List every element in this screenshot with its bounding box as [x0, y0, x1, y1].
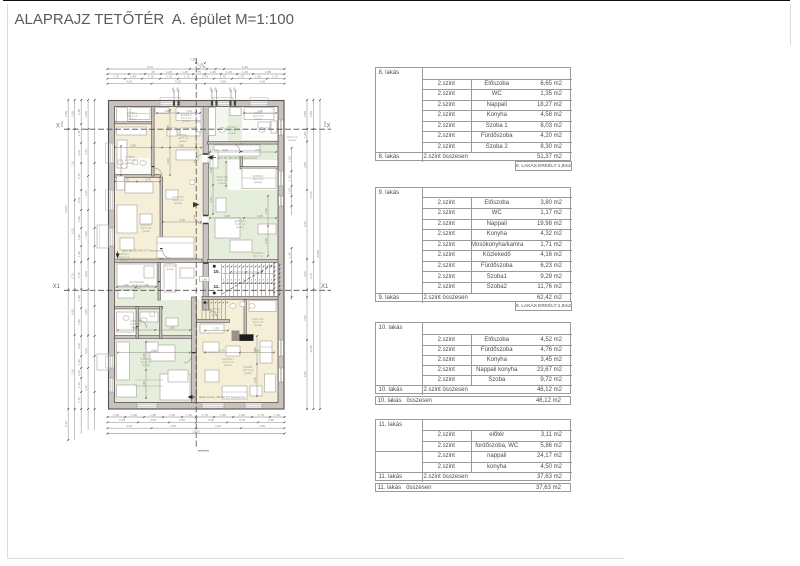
svg-text:X1: X1: [321, 284, 329, 290]
svg-text:1,70: 1,70: [113, 75, 119, 79]
svg-text:3,05: 3,05: [84, 271, 88, 277]
svg-text:4,30: 4,30: [126, 80, 132, 84]
svg-text:X: X: [56, 124, 60, 130]
svg-text:X1: X1: [53, 284, 61, 290]
svg-text:30,85: 30,85: [316, 250, 320, 258]
svg-text:greslap: greslap: [133, 287, 141, 290]
svg-text:3,40: 3,40: [84, 190, 88, 196]
svg-text:3,00: 3,00: [239, 418, 245, 422]
svg-text:2,10: 2,10: [166, 158, 170, 164]
svg-text:1,50: 1,50: [190, 58, 196, 62]
svg-text:18,27 m2: 18,27 m2: [165, 265, 176, 268]
svg-text:1,80: 1,80: [202, 278, 207, 281]
svg-text:2,85: 2,85: [64, 111, 68, 117]
svg-text:1,05: 1,05: [287, 188, 291, 194]
svg-text:1,75: 1,75: [213, 326, 219, 330]
svg-text:2,85: 2,85: [84, 111, 88, 117]
svg-text:18,27 m2: 18,27 m2: [253, 178, 264, 181]
svg-text:greslap: greslap: [142, 364, 150, 367]
svg-text:1,45: 1,45: [242, 70, 248, 74]
svg-text:4,70: 4,70: [84, 149, 88, 155]
svg-text:1,80: 1,80: [77, 234, 81, 240]
svg-text:1,35: 1,35: [287, 175, 291, 181]
svg-text:1,45: 1,45: [166, 70, 172, 74]
svg-text:3,50: 3,50: [220, 80, 226, 84]
svg-text:4,60: 4,60: [84, 309, 88, 315]
svg-text:2,75: 2,75: [309, 273, 313, 279]
svg-text:2,30: 2,30: [264, 208, 268, 214]
svg-text:1,70: 1,70: [186, 109, 192, 113]
svg-text:4,30: 4,30: [303, 315, 307, 321]
svg-text:11,95: 11,95: [309, 345, 313, 353]
svg-text:1,70: 1,70: [202, 75, 208, 79]
svg-text:2,85: 2,85: [130, 143, 136, 147]
svg-text:2,85: 2,85: [303, 111, 307, 117]
svg-text:2,28: 2,28: [253, 347, 257, 353]
svg-text:90: 90: [176, 87, 180, 90]
svg-text:18,27 m2: 18,27 m2: [173, 199, 184, 202]
svg-text:2,45: 2,45: [257, 214, 263, 218]
svg-text:greslap: greslap: [236, 226, 244, 229]
svg-text:2,30: 2,30: [222, 148, 228, 152]
svg-text:4,30: 4,30: [126, 424, 132, 428]
svg-text:1,85: 1,85: [239, 413, 245, 417]
svg-text:2,00: 2,00: [77, 150, 81, 156]
svg-text:greslap: greslap: [254, 118, 262, 121]
svg-text:4,55: 4,55: [71, 309, 75, 315]
svg-text:1,60: 1,60: [77, 251, 81, 257]
svg-text:1,65: 1,65: [113, 413, 119, 417]
svg-text:90: 90: [233, 87, 237, 90]
svg-text:2,78: 2,78: [179, 218, 185, 222]
svg-text:6,90: 6,90: [303, 221, 307, 227]
svg-text:7,10: 7,10: [71, 161, 75, 167]
svg-text:1,60: 1,60: [130, 75, 136, 79]
svg-text:45: 45: [151, 70, 155, 74]
svg-text:greslap: greslap: [126, 162, 134, 165]
svg-text:1,68: 1,68: [164, 109, 170, 113]
svg-text:13,30: 13,30: [309, 191, 313, 199]
svg-text:1,85: 1,85: [131, 413, 137, 417]
svg-text:greslap: greslap: [254, 258, 262, 261]
svg-text:1,70: 1,70: [148, 75, 154, 79]
svg-text:2,70: 2,70: [77, 173, 81, 179]
svg-text:2,00: 2,00: [77, 197, 81, 203]
svg-text:18,27 m2: 18,27 m2: [253, 255, 264, 258]
svg-text:greslap: greslap: [166, 268, 174, 271]
svg-text:15,05: 15,05: [192, 429, 200, 433]
svg-text:2,50: 2,50: [253, 377, 257, 383]
svg-text:1,50: 1,50: [200, 65, 206, 69]
svg-text:1,20: 1,20: [77, 359, 81, 365]
svg-text:3,25: 3,25: [84, 348, 88, 354]
svg-text:4,40: 4,40: [215, 424, 221, 428]
svg-text:2,75: 2,75: [71, 273, 75, 279]
svg-text:4,25: 4,25: [259, 80, 265, 84]
svg-text:1,70: 1,70: [166, 75, 172, 79]
svg-text:2,88: 2,88: [166, 125, 170, 131]
svg-text:2,60: 2,60: [224, 214, 230, 218]
svg-text:5,45: 5,45: [147, 65, 153, 69]
svg-text:1,40: 1,40: [274, 413, 280, 417]
svg-text:1,25: 1,25: [303, 132, 307, 138]
svg-text:18,27 m2: 18,27 m2: [130, 323, 141, 326]
svg-text:greslap: greslap: [224, 364, 232, 367]
svg-text:1,80: 1,80: [169, 413, 175, 417]
svg-text:4,90: 4,90: [84, 231, 88, 237]
svg-text:18,27 m2: 18,27 m2: [223, 361, 234, 364]
svg-text:2,70: 2,70: [77, 272, 81, 278]
svg-text:2,85: 2,85: [265, 70, 271, 74]
svg-text:1,75: 1,75: [258, 413, 264, 417]
svg-text:2,28: 2,28: [264, 238, 268, 244]
svg-text:greslap: greslap: [254, 181, 262, 184]
svg-text:2,85: 2,85: [71, 111, 75, 117]
svg-text:18,27 m2: 18,27 m2: [253, 115, 264, 118]
svg-text:greslap: greslap: [218, 182, 226, 185]
svg-text:greslap: greslap: [211, 314, 219, 317]
svg-text:greslap: greslap: [182, 120, 190, 123]
svg-text:greslap: greslap: [228, 132, 236, 135]
svg-text:2,20: 2,20: [209, 167, 213, 173]
svg-text:2,55: 2,55: [268, 418, 274, 422]
svg-text:7,40: 7,40: [71, 369, 75, 375]
svg-text:18,27 m2: 18,27 m2: [287, 136, 298, 139]
svg-text:1,70: 1,70: [238, 75, 244, 79]
svg-text:10.: 10.: [214, 269, 220, 274]
svg-text:1,40: 1,40: [287, 252, 291, 258]
svg-text:4,10: 4,10: [84, 385, 88, 391]
svg-text:greslap: greslap: [128, 118, 136, 121]
svg-text:90: 90: [228, 87, 232, 90]
svg-text:1,80: 1,80: [77, 216, 81, 222]
svg-text:1,00: 1,00: [287, 156, 291, 162]
svg-text:X: X: [327, 124, 331, 130]
svg-text:1,70: 1,70: [220, 75, 226, 79]
svg-text:18,27 m2: 18,27 m2: [125, 159, 136, 162]
svg-text:2,00: 2,00: [77, 343, 81, 349]
svg-text:greslap: greslap: [174, 202, 182, 205]
svg-text:1,30: 1,30: [186, 413, 192, 417]
svg-text:18,27 m2: 18,27 m2: [127, 115, 138, 118]
svg-text:1,70: 1,70: [123, 177, 129, 181]
svg-text:6,20: 6,20: [71, 228, 75, 234]
svg-text:1,45: 1,45: [210, 70, 216, 74]
svg-text:3,00: 3,00: [303, 271, 307, 277]
svg-text:18,27 m2: 18,27 m2: [119, 256, 130, 259]
svg-text:2,35: 2,35: [77, 109, 81, 115]
svg-text:greslap: greslap: [288, 139, 296, 142]
svg-text:18,27 m2: 18,27 m2: [141, 361, 152, 364]
svg-text:1,45: 1,45: [182, 70, 188, 74]
svg-text:4,30: 4,30: [259, 424, 265, 428]
svg-text:11.: 11.: [214, 284, 220, 289]
svg-text:greslap: greslap: [254, 324, 262, 327]
svg-text:2,98: 2,98: [178, 143, 184, 147]
svg-text:90: 90: [171, 87, 175, 90]
svg-text:1,70: 1,70: [272, 75, 278, 79]
svg-text:18,27 m2: 18,27 m2: [227, 129, 238, 132]
svg-text:1,45: 1,45: [123, 283, 129, 287]
svg-text:1,85: 1,85: [220, 413, 226, 417]
svg-text:2,73: 2,73: [255, 148, 261, 152]
svg-text:2,20: 2,20: [142, 381, 146, 387]
svg-text:2,65: 2,65: [169, 326, 175, 330]
svg-text:4,35: 4,35: [170, 424, 176, 428]
svg-text:2,85: 2,85: [309, 111, 313, 117]
svg-text:greslap: greslap: [142, 230, 150, 233]
svg-text:90: 90: [214, 87, 218, 90]
svg-text:greslap: greslap: [244, 372, 252, 375]
svg-text:18,27 m2: 18,27 m2: [253, 321, 264, 324]
svg-text:6,90: 6,90: [303, 371, 307, 377]
svg-text:2,95: 2,95: [119, 418, 125, 422]
svg-text:3,40: 3,40: [242, 65, 248, 69]
svg-text:1,70: 1,70: [77, 397, 81, 403]
svg-text:1,60: 1,60: [255, 75, 261, 79]
svg-text:1,45: 1,45: [226, 70, 232, 74]
svg-text:2,23: 2,23: [209, 197, 213, 203]
svg-text:2,80: 2,80: [77, 319, 81, 325]
svg-text:1,70: 1,70: [184, 75, 190, 79]
svg-text:tartó fal, 3D HP 0/7 betonozva: tartó fal, 3D HP 0/7 betonozva: [122, 249, 162, 253]
svg-text:18,27 m2: 18,27 m2: [210, 311, 221, 314]
svg-text:3,10: 3,10: [64, 421, 68, 427]
svg-text:1,85: 1,85: [150, 413, 156, 417]
svg-text:3,00: 3,00: [208, 418, 214, 422]
svg-text:2,70: 2,70: [219, 348, 225, 352]
svg-text:1,75: 1,75: [202, 413, 208, 417]
svg-text:18,27 m2: 18,27 m2: [217, 179, 228, 182]
svg-text:5,55: 5,55: [151, 348, 157, 352]
svg-text:90: 90: [209, 87, 213, 90]
svg-text:5,25: 5,25: [175, 80, 181, 84]
svg-text:18,27 m2: 18,27 m2: [243, 369, 254, 372]
svg-text:18,27 m2: 18,27 m2: [181, 117, 192, 120]
svg-text:2,60: 2,60: [179, 418, 185, 422]
svg-text:greslap: greslap: [131, 326, 139, 329]
svg-text:1,90: 1,90: [77, 295, 81, 301]
svg-text:18,27 m2: 18,27 m2: [132, 284, 143, 287]
svg-text:3,00: 3,00: [150, 418, 156, 422]
svg-text:greslap: greslap: [120, 259, 128, 262]
svg-text:4,65: 4,65: [303, 162, 307, 168]
svg-text:75: 75: [197, 70, 201, 74]
svg-text:greslap: greslap: [179, 140, 187, 143]
svg-text:18,27 m2: 18,27 m2: [141, 227, 152, 230]
svg-text:16,00: 16,00: [64, 205, 68, 213]
svg-text:18,27 m2: 18,27 m2: [235, 223, 246, 226]
svg-text:lakás erkély, 3D HP 0/7 betono: lakás erkély, 3D HP 0/7 betonozva: [199, 395, 245, 399]
svg-text:1,40: 1,40: [77, 382, 81, 388]
svg-text:18,27 m2: 18,27 m2: [178, 137, 189, 140]
svg-text:1,73: 1,73: [145, 177, 151, 181]
svg-text:1,90: 1,90: [77, 130, 81, 136]
svg-text:tartó fal, 3D HP 0/7 betonozva: tartó fal, 3D HP 0/7 betonozva: [217, 156, 257, 160]
svg-text:1,00: 1,00: [77, 370, 81, 376]
